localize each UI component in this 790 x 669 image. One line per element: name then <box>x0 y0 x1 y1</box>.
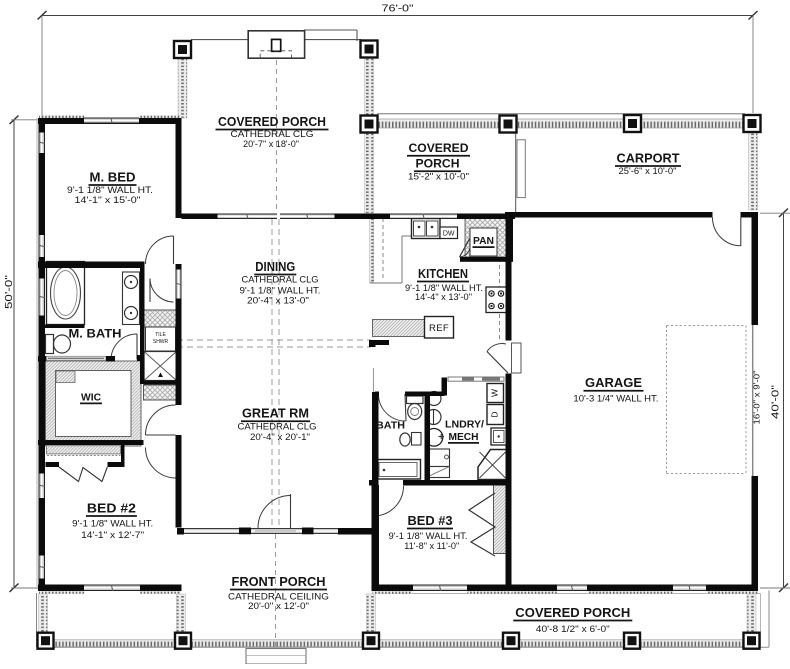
svg-text:14'-1" x 12'-7": 14'-1" x 12'-7" <box>81 530 144 540</box>
svg-text:BATH: BATH <box>376 419 405 431</box>
svg-text:76'-0": 76'-0" <box>382 2 414 14</box>
svg-text:W: W <box>489 389 499 397</box>
svg-text:50'-0": 50'-0" <box>3 275 15 309</box>
svg-text:CATHEDRAL CLG: CATHEDRAL CLG <box>242 274 319 284</box>
svg-text:SHWR: SHWR <box>153 339 169 345</box>
svg-text:CATHEDRAL CEILING: CATHEDRAL CEILING <box>228 591 329 601</box>
svg-text:PAN: PAN <box>473 236 494 247</box>
svg-text:20'-7" x 18'-0": 20'-7" x 18'-0" <box>243 139 299 149</box>
svg-text:9'-1 1/8" WALL HT.: 9'-1 1/8" WALL HT. <box>67 185 153 195</box>
svg-text:WIC: WIC <box>81 391 101 403</box>
svg-text:14'-1" x 15'-0": 14'-1" x 15'-0" <box>75 195 141 205</box>
svg-text:14'-4" x 13'-0": 14'-4" x 13'-0" <box>415 292 472 302</box>
svg-text:KITCHEN: KITCHEN <box>418 267 468 281</box>
svg-text:LNDRY/: LNDRY/ <box>445 418 484 430</box>
svg-text:REF: REF <box>429 323 449 334</box>
svg-text:TILE: TILE <box>155 332 166 338</box>
svg-text:20'-4" x 20'-1": 20'-4" x 20'-1" <box>250 432 310 442</box>
svg-text:CARPORT: CARPORT <box>617 151 680 165</box>
svg-text:9'-1 1/8" WALL HT.: 9'-1 1/8" WALL HT. <box>240 285 321 295</box>
svg-text:25'-6" x 10'-0": 25'-6" x 10'-0" <box>619 166 677 176</box>
svg-text:D: D <box>489 411 499 417</box>
svg-text:PORCH: PORCH <box>416 157 460 171</box>
svg-text:DINING: DINING <box>255 260 295 274</box>
svg-text:10'-3 1/4" WALL HT.: 10'-3 1/4" WALL HT. <box>573 393 658 403</box>
svg-text:COVERED: COVERED <box>409 141 469 155</box>
svg-text:GREAT RM: GREAT RM <box>242 405 309 420</box>
svg-text:15'-2" x 10'-0": 15'-2" x 10'-0" <box>408 171 469 181</box>
svg-text:9'-1 1/8" WALL HT.: 9'-1 1/8" WALL HT. <box>72 518 153 528</box>
svg-text:20'-0" x 12'-0": 20'-0" x 12'-0" <box>248 601 309 611</box>
svg-text:MECH: MECH <box>449 431 479 443</box>
svg-text:40'-0": 40'-0" <box>769 385 781 419</box>
svg-text:40'-8 1/2" x 6'-0": 40'-8 1/2" x 6'-0" <box>536 624 610 634</box>
svg-text:CATHEDRAL CLG: CATHEDRAL CLG <box>231 129 314 139</box>
svg-text:BED #3: BED #3 <box>408 514 453 528</box>
svg-text:FRONT PORCH: FRONT PORCH <box>232 575 326 589</box>
svg-text:M. BATH: M. BATH <box>69 329 122 341</box>
svg-text:DW: DW <box>443 230 455 237</box>
svg-text:9'-1 1/8" WALL HT.: 9'-1 1/8" WALL HT. <box>389 531 468 541</box>
svg-text:M. BED: M. BED <box>90 170 136 184</box>
svg-text:GARAGE: GARAGE <box>585 375 642 390</box>
svg-text:CATHEDRAL CLG: CATHEDRAL CLG <box>238 421 317 431</box>
svg-text:20'-4" x 13'-0": 20'-4" x 13'-0" <box>247 295 309 305</box>
svg-text:BED #2: BED #2 <box>87 501 136 515</box>
svg-text:11'-8" x 11'-0": 11'-8" x 11'-0" <box>404 541 459 551</box>
svg-text:COVERED PORCH: COVERED PORCH <box>515 606 630 620</box>
svg-text:COVERED PORCH: COVERED PORCH <box>218 115 326 129</box>
